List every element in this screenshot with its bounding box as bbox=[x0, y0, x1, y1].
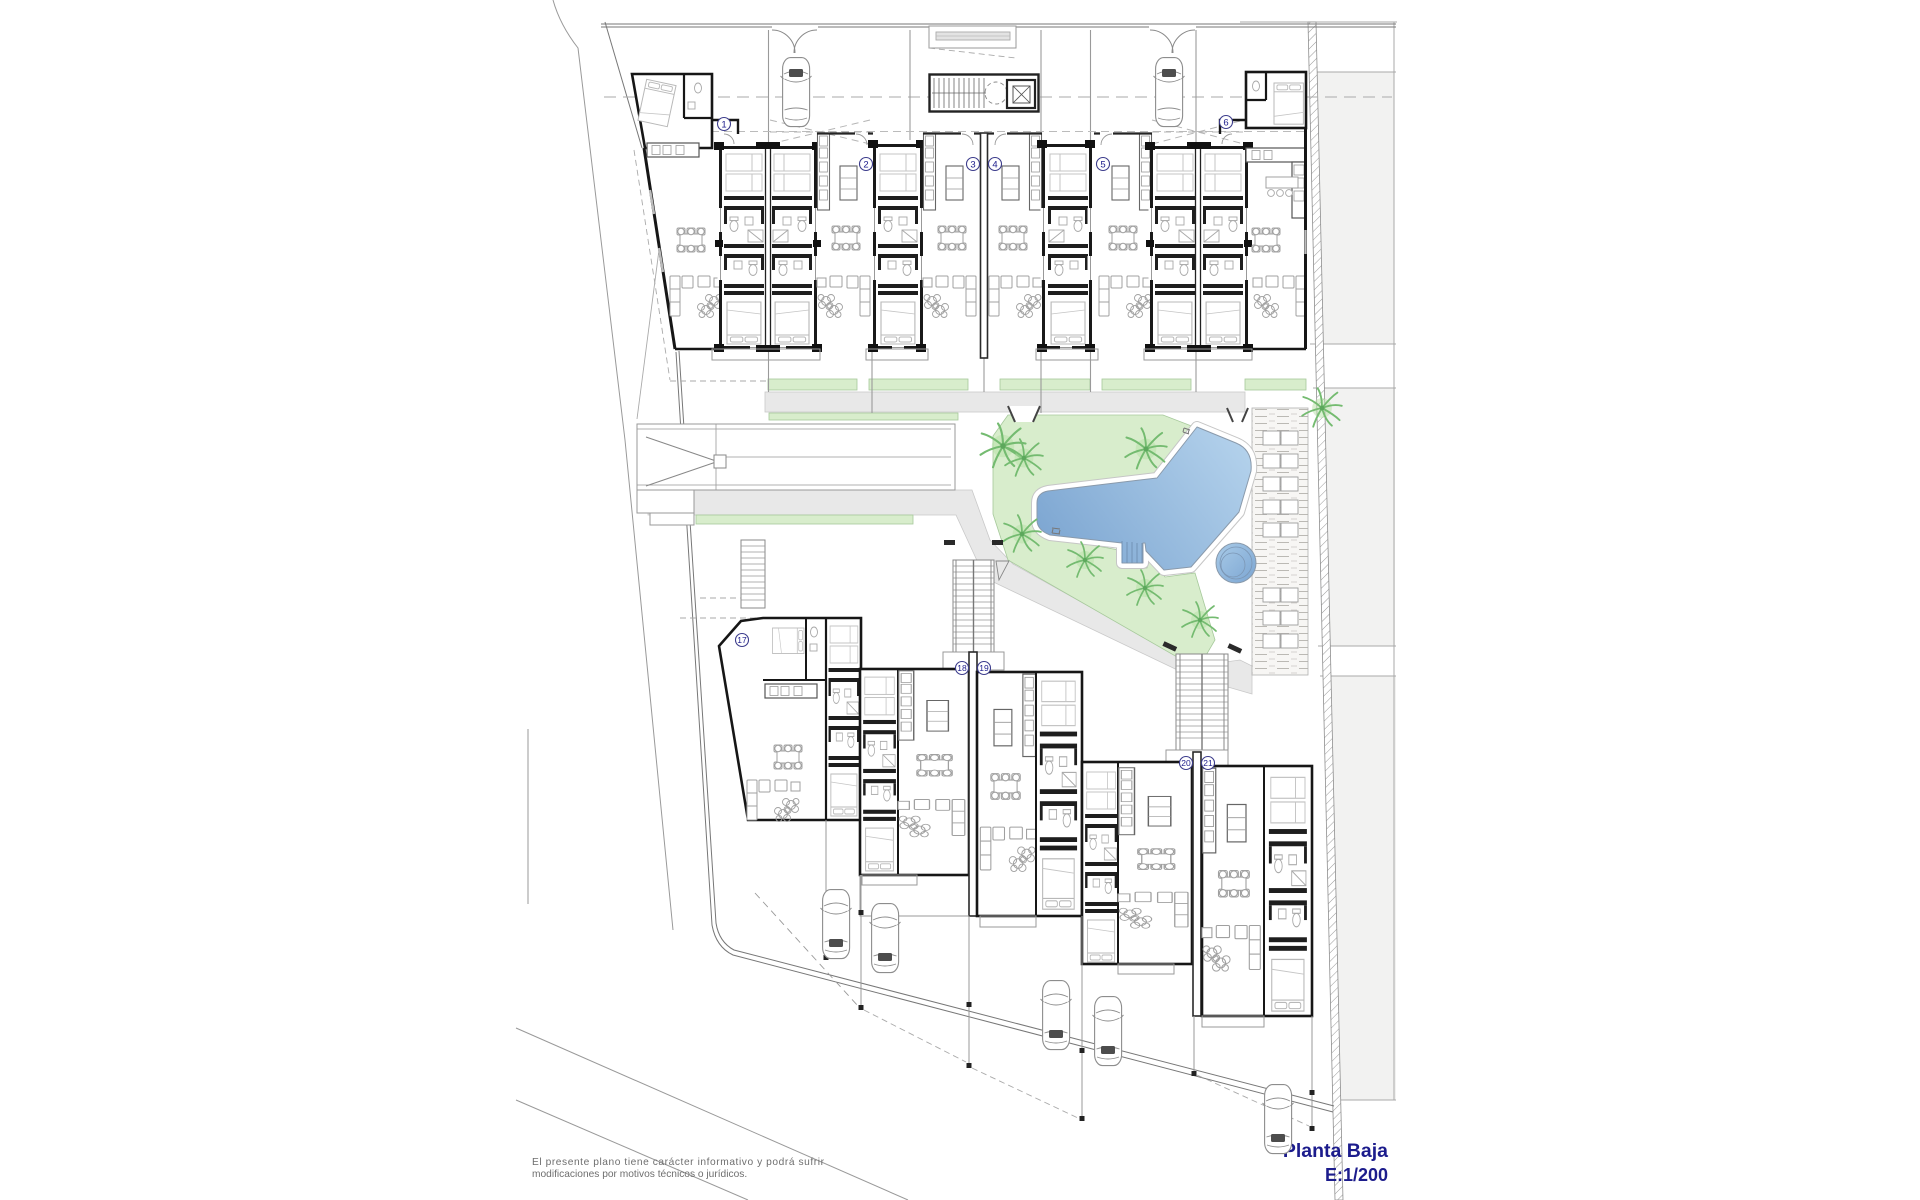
svg-text:6: 6 bbox=[1223, 118, 1228, 129]
svg-text:18: 18 bbox=[957, 663, 967, 673]
svg-text:modificaciones por motivos téc: modificaciones por motivos técnicos o ju… bbox=[532, 1169, 747, 1180]
svg-text:Planta Baja: Planta Baja bbox=[1283, 1140, 1388, 1162]
svg-text:E:1/200: E:1/200 bbox=[1325, 1165, 1388, 1185]
svg-text:1: 1 bbox=[721, 120, 726, 131]
svg-text:3: 3 bbox=[970, 160, 975, 171]
svg-text:2: 2 bbox=[863, 160, 868, 171]
svg-text:El presente plano tiene ca: El presente plano tiene carácter informa… bbox=[532, 1157, 825, 1168]
svg-text:5: 5 bbox=[1100, 160, 1105, 171]
svg-text:19: 19 bbox=[979, 663, 989, 673]
svg-text:17: 17 bbox=[737, 635, 747, 645]
svg-text:20: 20 bbox=[1181, 758, 1191, 768]
svg-text:21: 21 bbox=[1203, 758, 1213, 768]
svg-text:4: 4 bbox=[992, 160, 997, 171]
